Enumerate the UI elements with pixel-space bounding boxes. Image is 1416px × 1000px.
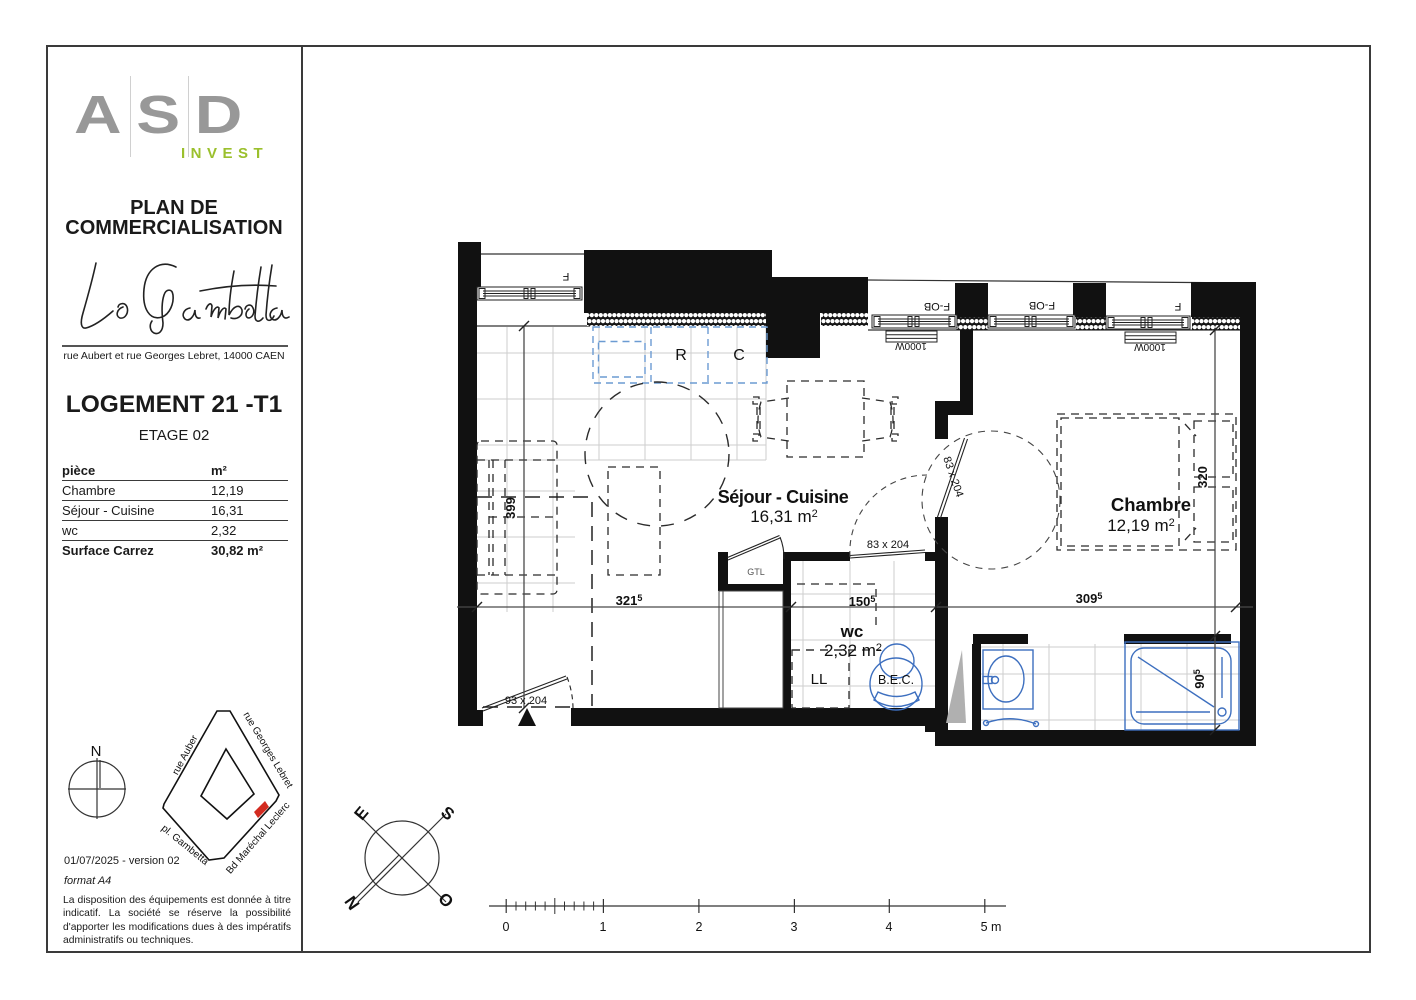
svg-text:83 x 204: 83 x 204 <box>867 539 909 551</box>
svg-text:pl. Gambetta: pl. Gambetta <box>159 823 211 868</box>
svg-text:1000W: 1000W <box>1134 341 1166 352</box>
svg-text:2,32 m2: 2,32 m2 <box>824 641 882 660</box>
svg-text:93 x 204: 93 x 204 <box>505 695 547 707</box>
svg-text:F: F <box>1174 300 1181 312</box>
svg-text:320: 320 <box>1195 466 1210 488</box>
svg-text:rue Georges Lebret: rue Georges Lebret <box>241 710 295 790</box>
svg-text:1000W: 1000W <box>895 340 927 351</box>
svg-text:N: N <box>341 892 364 913</box>
svg-text:C: C <box>733 347 745 364</box>
svg-text:F-OB: F-OB <box>1029 299 1055 311</box>
svg-text:F-OB: F-OB <box>924 300 950 312</box>
svg-text:83 x 204: 83 x 204 <box>940 455 965 499</box>
svg-text:S: S <box>437 802 458 824</box>
svg-text:3095: 3095 <box>1076 591 1103 606</box>
svg-text:16,31 m2: 16,31 m2 <box>750 507 818 526</box>
svg-text:4: 4 <box>886 920 893 934</box>
svg-text:3215: 3215 <box>616 593 643 608</box>
svg-text:Chambre: Chambre <box>1111 494 1191 515</box>
svg-text:R: R <box>675 347 687 364</box>
svg-text:399: 399 <box>503 497 518 519</box>
svg-text:2: 2 <box>696 920 703 934</box>
svg-text:5 m: 5 m <box>981 920 1002 934</box>
svg-text:O: O <box>434 889 457 912</box>
svg-text:0: 0 <box>503 920 510 934</box>
svg-text:rue Auber: rue Auber <box>170 733 200 777</box>
svg-text:Séjour - Cuisine: Séjour - Cuisine <box>718 487 849 507</box>
svg-text:LL: LL <box>811 671 828 688</box>
svg-text:905: 905 <box>1192 669 1207 688</box>
svg-text:E: E <box>350 803 372 824</box>
svg-text:N: N <box>91 743 102 760</box>
svg-text:wc: wc <box>840 622 864 641</box>
svg-text:B.E.C.: B.E.C. <box>878 673 914 687</box>
svg-text:1: 1 <box>600 920 607 934</box>
svg-text:GTL: GTL <box>747 567 765 577</box>
svg-text:3: 3 <box>791 920 798 934</box>
svg-text:F: F <box>562 270 569 282</box>
svg-text:12,19 m2: 12,19 m2 <box>1107 516 1175 535</box>
